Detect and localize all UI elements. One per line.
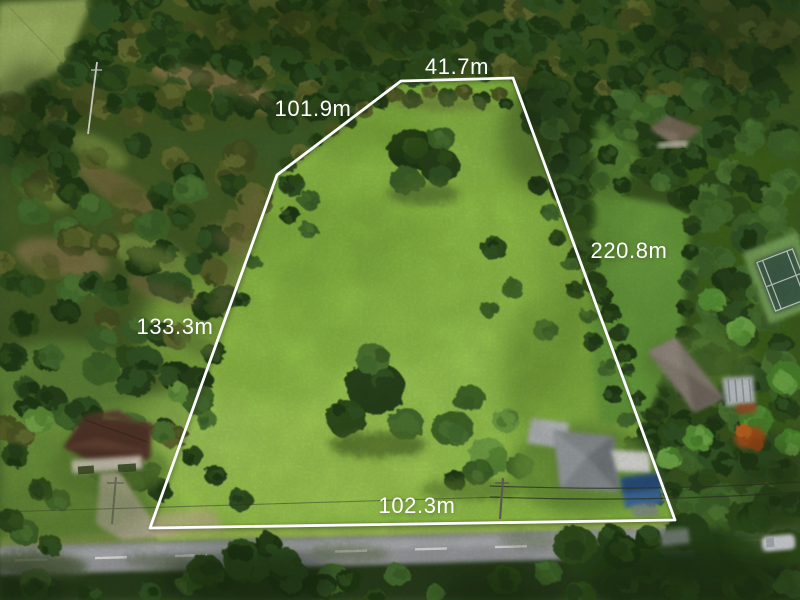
svg-text:133.3m: 133.3m: [137, 314, 214, 339]
svg-text:41.7m: 41.7m: [425, 54, 489, 79]
svg-text:101.9m: 101.9m: [275, 96, 352, 121]
svg-text:220.8m: 220.8m: [591, 238, 668, 263]
svg-text:102.3m: 102.3m: [379, 493, 456, 518]
